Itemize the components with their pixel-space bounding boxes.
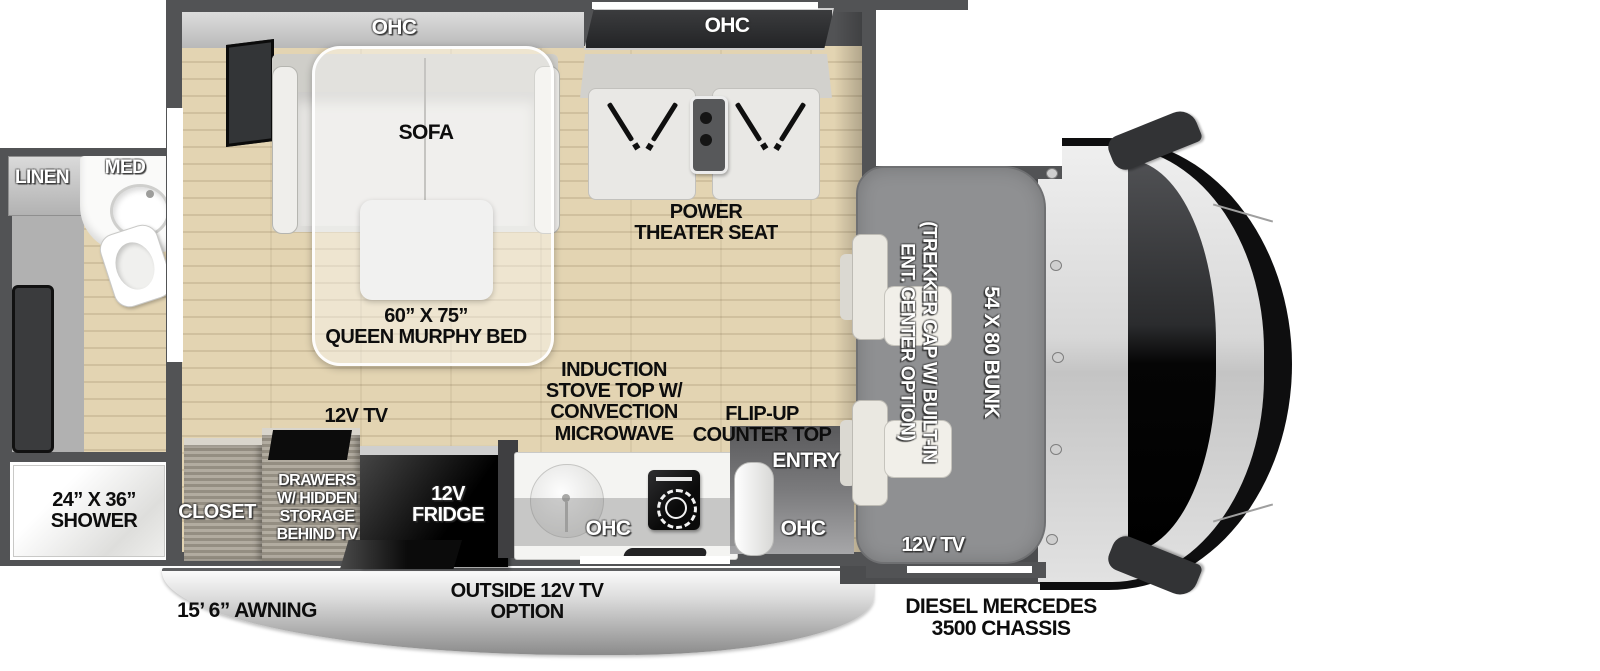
body-rivet xyxy=(1050,444,1062,455)
label-med: MED xyxy=(105,158,145,178)
closet-cabinet xyxy=(184,438,262,561)
console-cupholder-icon xyxy=(700,134,712,146)
rv-floorplan: LINEN MED OHC OHC SOFA POWER THEATER SEA… xyxy=(0,0,1600,671)
body-rivet xyxy=(1050,260,1062,271)
label-drawers: DRAWERS W/ HIDDEN STORAGE BEHIND TV xyxy=(277,472,358,544)
stove-burner-ring-inner xyxy=(665,497,687,519)
label-fridge: 12V FRIDGE xyxy=(412,484,484,526)
label-murphy-bed: 60” X 75” QUEEN MURPHY BED xyxy=(325,306,526,348)
body-rivet xyxy=(1046,168,1058,179)
label-sofa: SOFA xyxy=(399,122,454,144)
overcab-window-strip xyxy=(908,156,1032,162)
top-wall-window-strip xyxy=(592,2,818,9)
body-rivet xyxy=(1046,534,1058,545)
under-bunk-strip xyxy=(907,566,1032,573)
label-chassis: DIESEL MERCEDES 3500 CHASSIS xyxy=(905,596,1096,641)
label-ohc-theater: OHC xyxy=(705,15,750,37)
faucet-icon xyxy=(146,190,154,198)
label-bunk: 54 X 80 BUNK xyxy=(980,286,1002,418)
passenger-seat-back xyxy=(852,400,888,506)
label-ohc-counter: OHC xyxy=(586,518,631,540)
murphy-bed-pillow xyxy=(360,200,493,300)
label-closet: CLOSET xyxy=(178,502,256,523)
hidden-tv-icon xyxy=(268,430,352,460)
label-trekker-cap: (TREKKER CAP W/ BUILT-IN ENT. CENTER OPT… xyxy=(895,221,940,462)
label-flip-up: FLIP-UP COUNTER TOP xyxy=(693,404,832,446)
label-theater-seat: POWER THEATER SEAT xyxy=(634,202,777,244)
label-outside-tv: OUTSIDE 12V TV OPTION xyxy=(451,581,604,623)
bathroom-window xyxy=(12,285,54,453)
outside-tv-icon xyxy=(340,540,462,569)
label-ohc-sofa: OHC xyxy=(372,17,417,39)
bottom-wall-window-strip xyxy=(580,556,730,564)
label-awning: 15’ 6” AWNING xyxy=(177,600,317,622)
sofa-armrest-left xyxy=(272,66,298,234)
label-entry: ENTRY xyxy=(772,450,839,472)
console-cupholder-icon xyxy=(700,112,712,124)
living-window xyxy=(226,39,274,147)
label-shower: 24” X 36” SHOWER xyxy=(51,490,137,532)
body-rivet xyxy=(1052,352,1064,363)
stove-vent-mark xyxy=(656,477,692,481)
theater-seat-left xyxy=(588,88,696,200)
flip-up-counter xyxy=(734,462,774,556)
label-stove: INDUCTION STOVE TOP W/ CONVECTION MICROW… xyxy=(546,360,682,445)
driver-seat-back xyxy=(852,234,888,340)
label-bunk-tv: 12V TV xyxy=(901,535,964,556)
label-linen: LINEN xyxy=(15,168,69,188)
bunk xyxy=(856,166,1046,564)
left-wall-window-strip xyxy=(167,108,183,362)
overcab-window xyxy=(850,0,1062,179)
label-ohc-entry: OHC xyxy=(781,518,826,540)
label-kitchen-tv: 12V TV xyxy=(324,406,387,427)
